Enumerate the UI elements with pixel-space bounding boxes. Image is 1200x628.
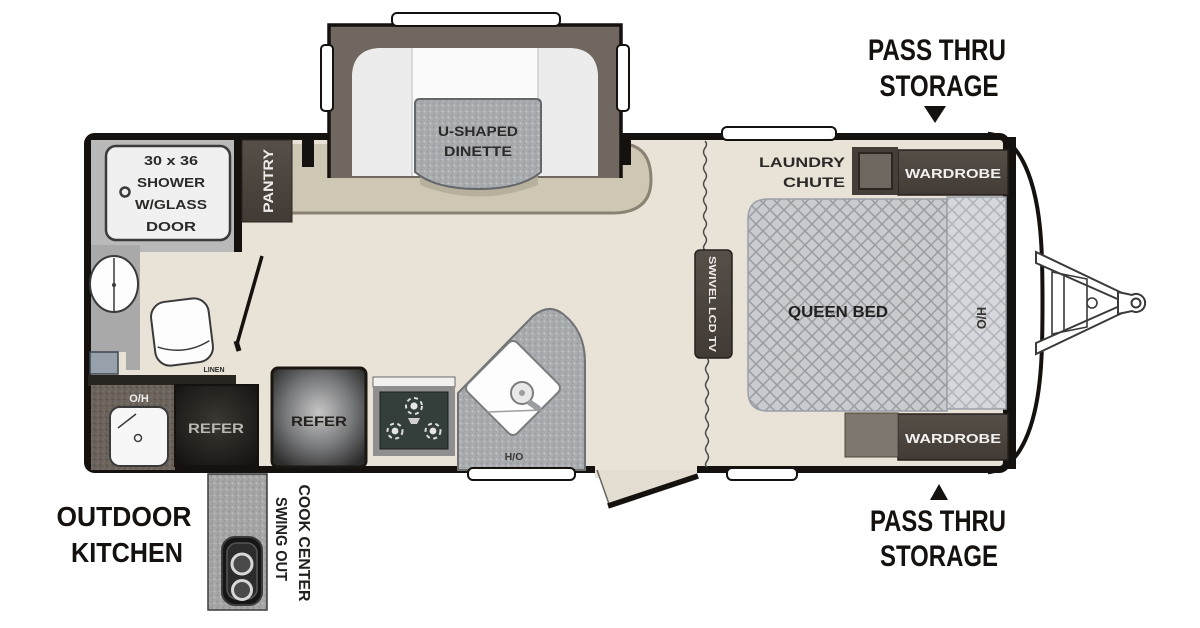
svg-text:REFER: REFER <box>291 414 347 429</box>
svg-text:LINEN: LINEN <box>204 367 225 374</box>
svg-text:REFER: REFER <box>188 421 244 436</box>
svg-text:SWIVEL LCD TV: SWIVEL LCD TV <box>706 256 718 352</box>
svg-text:STORAGE: STORAGE <box>880 540 998 573</box>
svg-text:SWING OUT: SWING OUT <box>272 497 289 581</box>
svg-text:SHOWER: SHOWER <box>137 176 205 190</box>
svg-text:DINETTE: DINETTE <box>444 144 512 159</box>
svg-text:WARDROBE: WARDROBE <box>905 432 1001 446</box>
svg-text:QUEEN BED: QUEEN BED <box>788 304 888 321</box>
svg-text:PASS THRU: PASS THRU <box>870 505 1006 538</box>
svg-text:PANTRY: PANTRY <box>260 148 276 213</box>
svg-text:WARDROBE: WARDROBE <box>905 167 1001 181</box>
svg-text:LAUNDRY: LAUNDRY <box>759 154 846 170</box>
svg-text:W/GLASS: W/GLASS <box>135 198 207 212</box>
svg-text:COOK CENTER: COOK CENTER <box>295 485 312 602</box>
svg-text:DOOR: DOOR <box>146 220 196 234</box>
svg-text:O/H: O/H <box>975 307 989 329</box>
svg-text:O/H: O/H <box>505 450 524 462</box>
svg-text:30 x 36: 30 x 36 <box>144 154 198 168</box>
svg-text:OUTDOOR: OUTDOOR <box>57 501 192 532</box>
svg-text:PASS THRU: PASS THRU <box>868 34 1006 67</box>
svg-text:U-SHAPED: U-SHAPED <box>438 124 518 139</box>
svg-text:STORAGE: STORAGE <box>880 70 999 103</box>
svg-text:O/H: O/H <box>129 393 149 405</box>
svg-text:KITCHEN: KITCHEN <box>71 537 183 568</box>
svg-text:CHUTE: CHUTE <box>783 174 845 190</box>
